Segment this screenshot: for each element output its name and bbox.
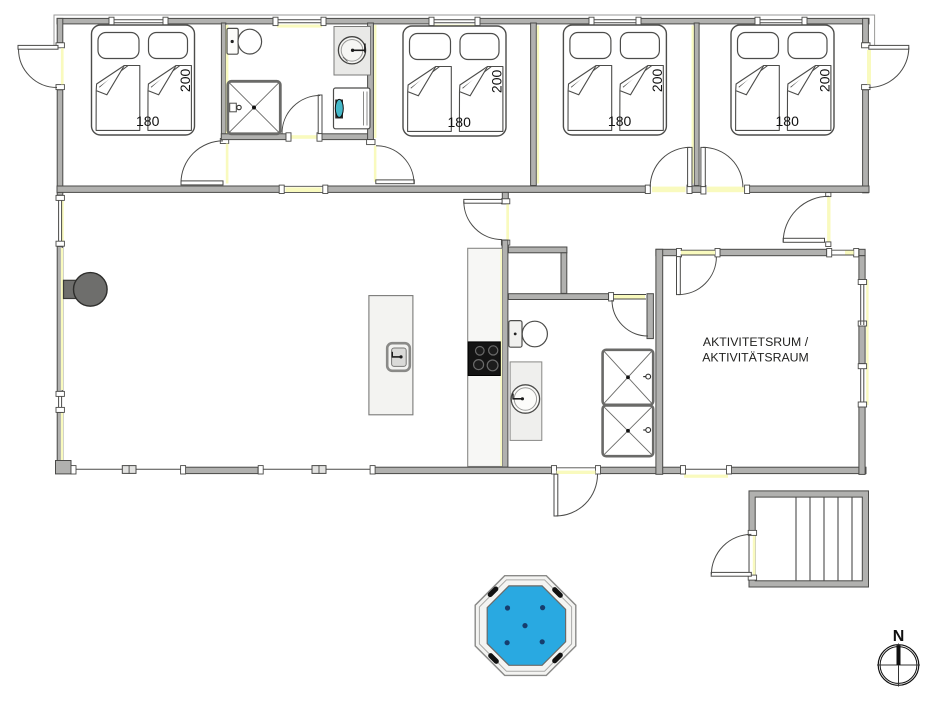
svg-text:AKTIVITÄTSRAUM: AKTIVITÄTSRAUM xyxy=(702,351,809,365)
svg-text:AKTIVITETSRUM /: AKTIVITETSRUM / xyxy=(703,335,809,349)
svg-text:N: N xyxy=(893,628,905,645)
